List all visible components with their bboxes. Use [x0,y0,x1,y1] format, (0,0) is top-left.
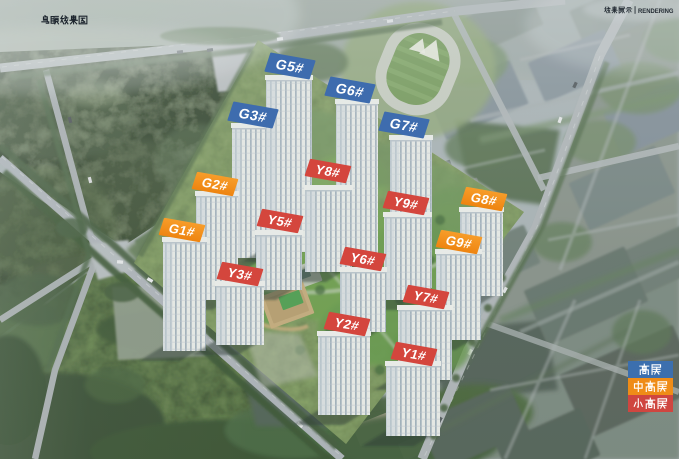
svg-text:RENDERING: RENDERING [638,8,674,15]
